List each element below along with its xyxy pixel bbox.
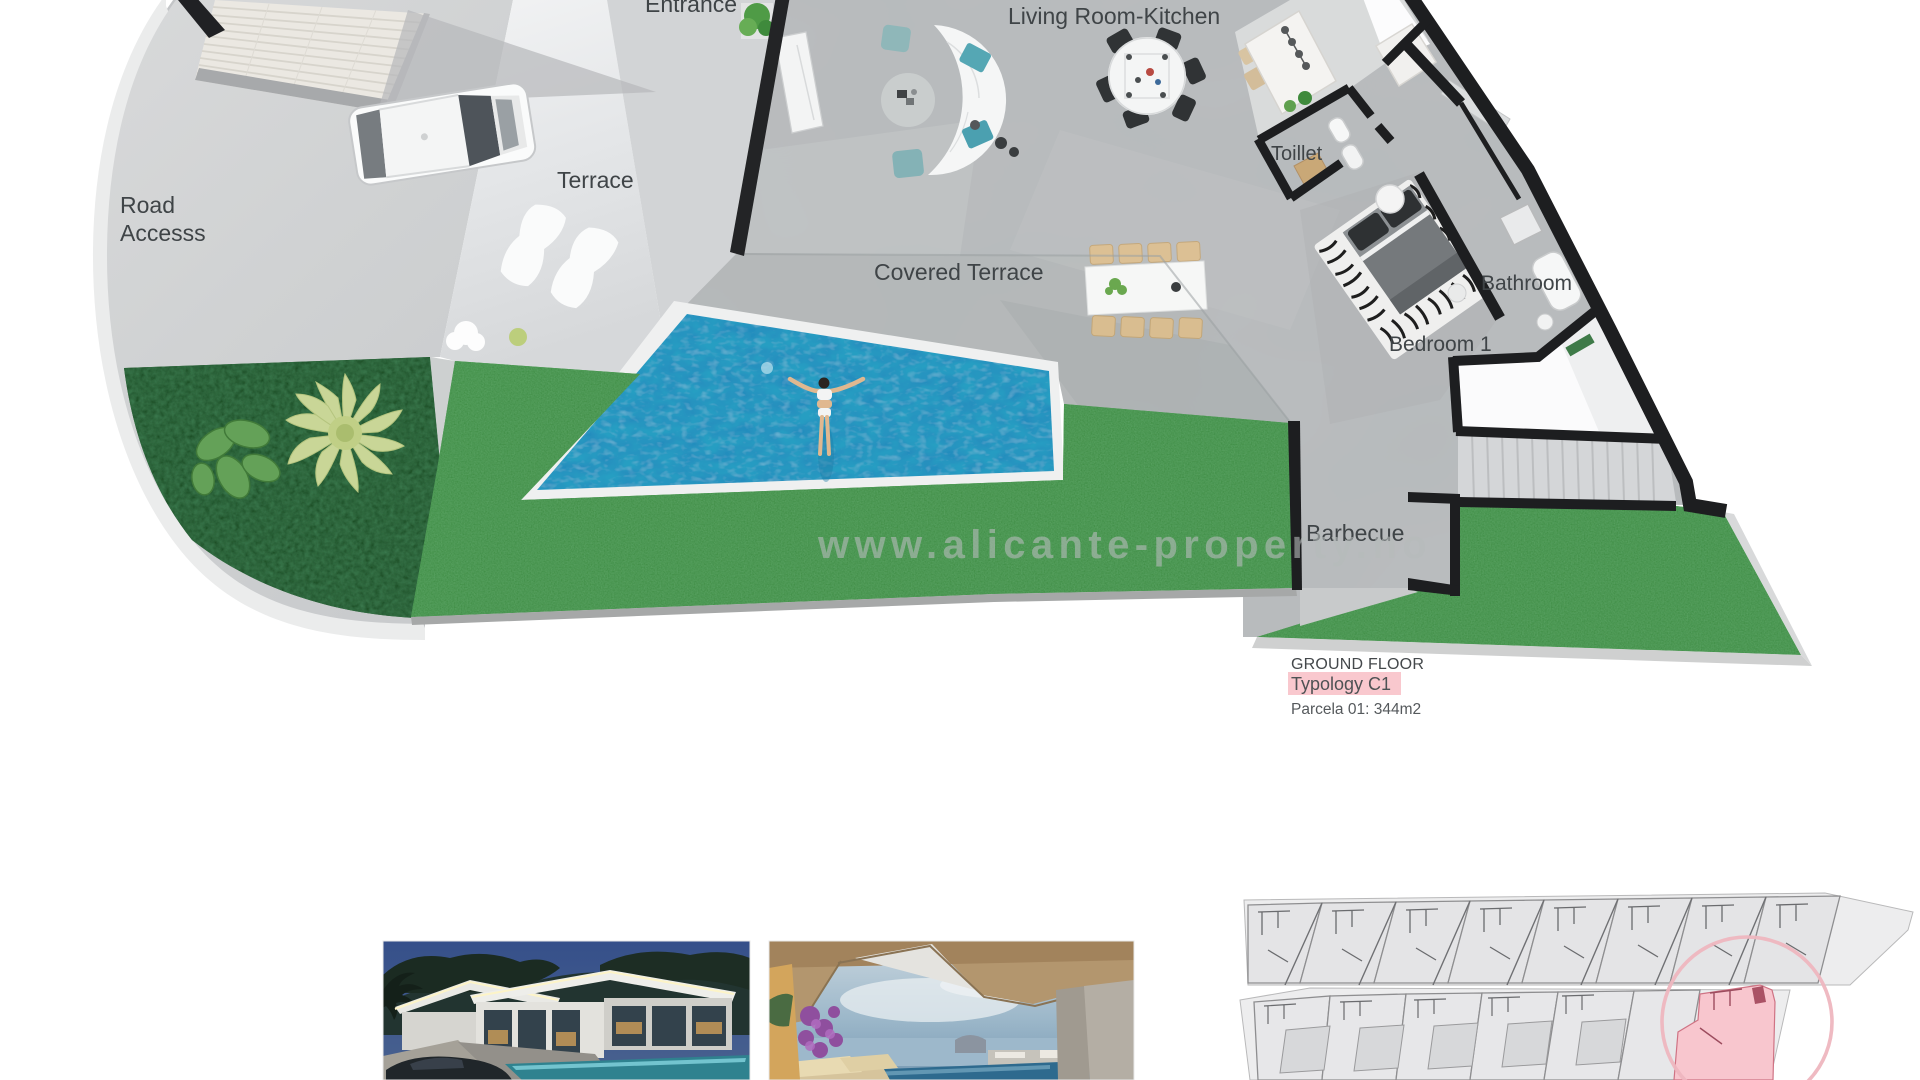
svg-text:Accesss: Accesss <box>120 220 206 246</box>
svg-text:Covered Terrace: Covered Terrace <box>874 259 1044 285</box>
svg-text:www.alicante-property.no: www.alicante-property.no <box>817 523 1432 567</box>
svg-text:Road: Road <box>120 192 175 218</box>
svg-text:Terrace: Terrace <box>557 167 634 193</box>
svg-text:GROUND FLOOR: GROUND FLOOR <box>1291 656 1424 673</box>
svg-text:Entrance: Entrance <box>645 0 737 17</box>
svg-text:Living Room-Kitchen: Living Room-Kitchen <box>1008 3 1220 29</box>
svg-text:Parcela 01: 344m2: Parcela 01: 344m2 <box>1291 701 1421 718</box>
svg-text:Typology C1: Typology C1 <box>1291 674 1391 694</box>
svg-text:Toillet: Toillet <box>1271 143 1323 165</box>
svg-text:Bedroom 1: Bedroom 1 <box>1389 333 1492 356</box>
svg-text:Bathroom: Bathroom <box>1481 272 1572 295</box>
